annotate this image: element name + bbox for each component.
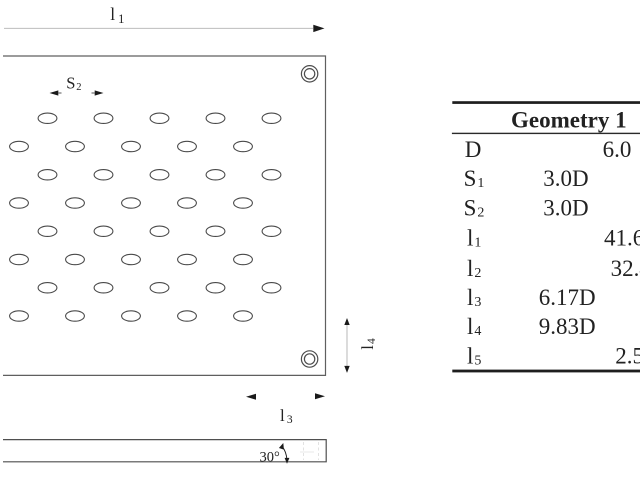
svg-text:l1: l1 — [110, 4, 124, 26]
svg-text:l2: l2 — [467, 256, 481, 281]
svg-text:6.17D: 6.17D — [539, 285, 596, 310]
svg-text:41.6: 41.6 — [604, 226, 640, 251]
svg-text:l4: l4 — [467, 314, 481, 339]
svg-text:32.4: 32.4 — [611, 256, 640, 281]
svg-text:3.0D: 3.0D — [543, 166, 588, 191]
svg-text:2.5: 2.5 — [615, 344, 640, 369]
svg-text:l1: l1 — [467, 226, 481, 251]
svg-text:S2: S2 — [66, 73, 81, 93]
svg-text:S1: S1 — [464, 166, 485, 191]
svg-text:6.0: 6.0 — [603, 137, 632, 162]
svg-text:S2: S2 — [464, 195, 485, 220]
svg-text:9.83D: 9.83D — [539, 314, 596, 339]
svg-text:Geometry 1: Geometry 1 — [511, 107, 627, 132]
svg-text:l5: l5 — [467, 344, 481, 369]
svg-text:30°: 30° — [260, 449, 281, 465]
svg-text:l4: l4 — [358, 338, 378, 350]
svg-text:D: D — [465, 137, 482, 162]
svg-text:l3: l3 — [467, 285, 481, 310]
svg-text:l3: l3 — [280, 406, 293, 426]
svg-text:3.0D: 3.0D — [543, 195, 588, 220]
